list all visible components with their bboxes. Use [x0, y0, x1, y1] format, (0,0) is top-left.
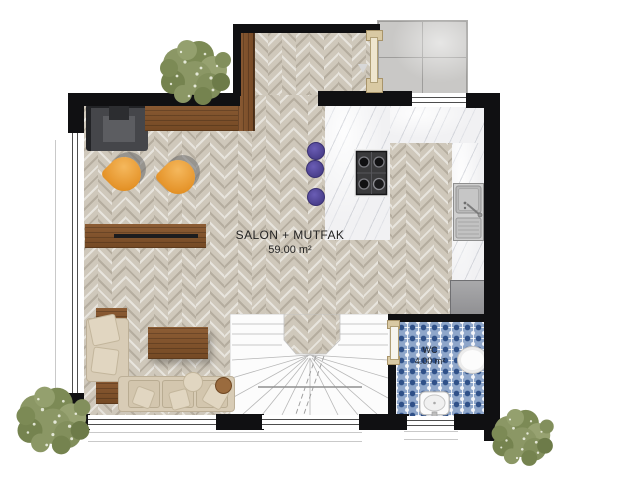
wall-right: [484, 93, 500, 441]
window-wc: [407, 416, 456, 430]
kitchen-sink-icon: [453, 183, 484, 241]
fridge-icon: [450, 280, 486, 317]
wc-sink-icon: [419, 391, 450, 419]
stove-icon: [354, 149, 389, 197]
room-label-wc: WC 4.00 m²: [398, 345, 462, 367]
window-top: [412, 93, 466, 107]
bar-stool-icon: [307, 188, 325, 206]
tree-icon: [149, 24, 245, 120]
window-bottom-b: [262, 415, 361, 429]
bar-stool-icon: [306, 160, 324, 178]
window-bottom-a: [88, 415, 216, 429]
wall-entry-top: [233, 24, 380, 33]
wall-wc-top: [388, 314, 484, 322]
window-sill-left: [55, 140, 69, 388]
tv-icon: [114, 234, 198, 238]
window-sill-bottom: [88, 432, 362, 442]
staircase: [230, 314, 390, 416]
room-label-salon: SALON + MUTFAK 59.00 m²: [215, 228, 365, 256]
window-sill-wc: [404, 431, 458, 440]
wall-left-upper: [68, 93, 84, 133]
wall-bottom-mid: [216, 414, 264, 430]
kitchen-top-counter: [390, 106, 484, 143]
bar-stool-icon: [307, 142, 325, 160]
tree-icon: [5, 370, 105, 470]
entrance-porch-tiles: [377, 20, 468, 95]
sofa-pillow: [87, 313, 120, 346]
floor-plan: SALON + MUTFAK 59.00 m² WC 4.00 m²: [0, 0, 625, 480]
room-name: WC: [398, 345, 462, 356]
tree-icon: [482, 395, 566, 479]
entry-door-swing-arrow: [358, 64, 368, 73]
window-left: [68, 133, 82, 393]
wall-bottom-stairs: [359, 414, 409, 430]
armchair-dark: [86, 104, 148, 151]
side-table: [215, 377, 232, 394]
room-name: SALON + MUTFAK: [215, 228, 365, 242]
armchair-notch: [109, 104, 129, 120]
entry-door-leaf: [370, 37, 378, 83]
room-area: 59.00 m²: [215, 244, 365, 256]
wall-wc-left-lower: [388, 360, 396, 416]
wall-kitchen-top: [318, 91, 412, 106]
coffee-table: [148, 327, 208, 359]
room-area: 4.00 m²: [398, 356, 462, 367]
